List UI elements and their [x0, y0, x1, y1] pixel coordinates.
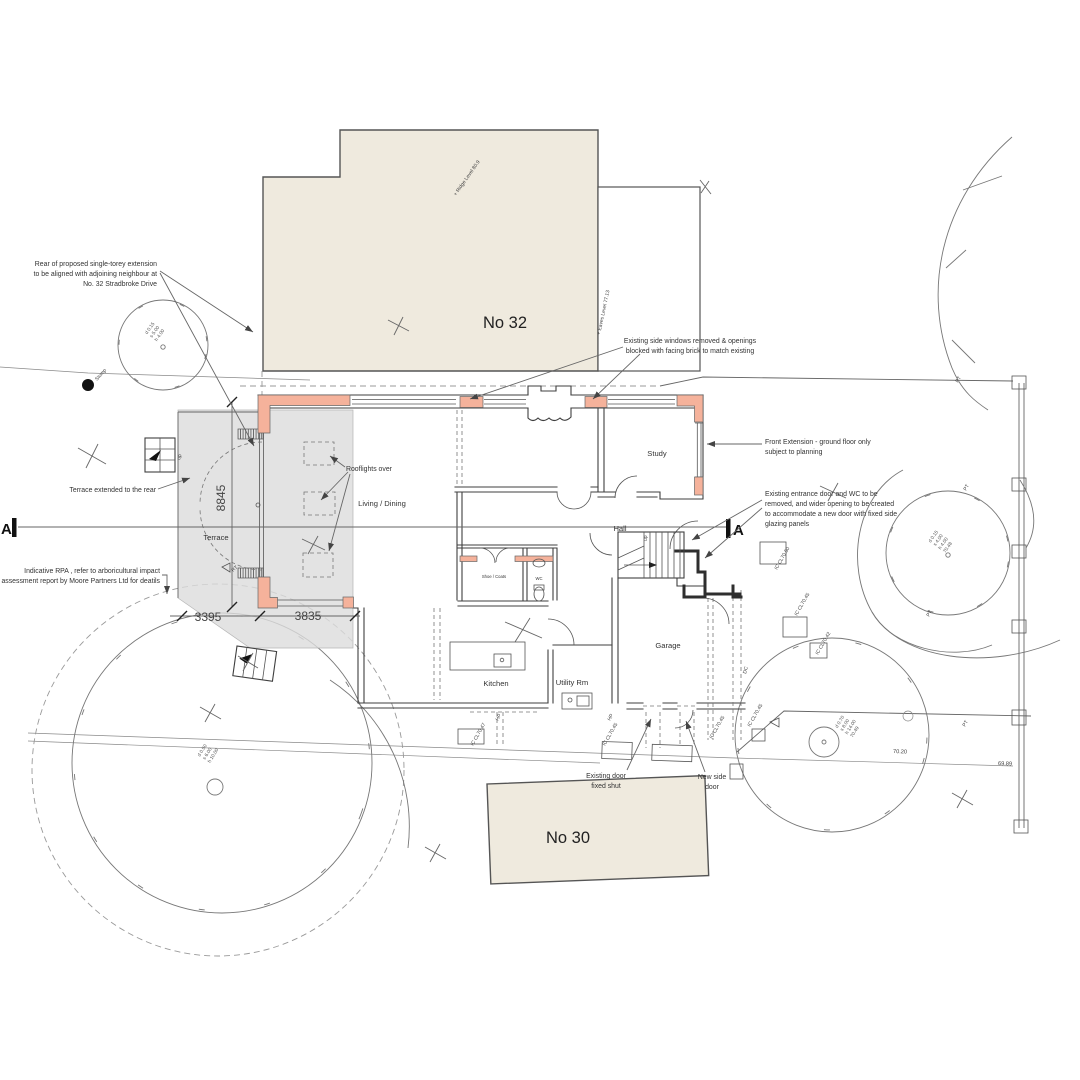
boundary-lines — [0, 367, 1031, 766]
annotation-entrance: Existing entrance door and WC to be remo… — [692, 491, 897, 558]
terrace-label: Terrace — [203, 533, 228, 542]
ic-label-5: IC CL70.47 — [470, 722, 488, 747]
svg-text:assessment report by Moore Par: assessment report by Moore Partners Ltd … — [1, 578, 160, 585]
store-label: Shoe / Coats — [482, 574, 506, 579]
svg-text:Existing entrance door and WC: Existing entrance door and WC to be — [765, 491, 878, 498]
section-line: A A — [1, 518, 744, 539]
building-no30: No 30 — [487, 776, 709, 884]
svg-text:glazing panels: glazing panels — [765, 521, 810, 528]
rooflights-label: Rooflights over — [346, 466, 393, 473]
stump-label: Stump — [94, 367, 108, 382]
stump-marker: Stump — [82, 367, 108, 391]
stairs-up-label: up — [643, 535, 649, 541]
section-marker-right: A — [733, 522, 744, 539]
ic-label-1: IC CL70.50 — [774, 546, 792, 571]
ic-label-2: IC CL70.45 — [794, 592, 812, 617]
study-label: Study — [647, 449, 667, 458]
pt-label-2: PT — [963, 483, 971, 492]
svg-text:Terrace extended to the rear: Terrace extended to the rear — [69, 487, 156, 494]
annotation-rpa: Indicative RPA , refer to arboricultural… — [1, 568, 167, 594]
garage-door-arc — [703, 598, 729, 624]
fence-right — [1012, 376, 1028, 833]
tree-bottom-right: d 0.70 s 8.00 h 14.00 70.49 — [717, 620, 947, 850]
svg-text:Indicative RPA , refer to arbo: Indicative RPA , refer to arboricultural… — [24, 568, 160, 575]
section-marker-left: A — [1, 521, 12, 538]
svg-text:Front Extension - ground floor: Front Extension - ground floor only — [765, 439, 871, 446]
living-dining-label: Living / Dining — [358, 499, 406, 508]
pt-label-3: PT — [926, 609, 934, 618]
tree-right: d 0.15 s 4.00 h 4.00 70.48 — [858, 470, 1060, 658]
svg-text:door: door — [705, 784, 719, 791]
ic-label-7: IC CL70.45 — [709, 715, 727, 740]
svg-text:to accommodate a new door with: to accommodate a new door with fixed sid… — [765, 511, 897, 518]
hall-label: Hall — [613, 524, 626, 533]
svg-text:blocked with facing brick to m: blocked with facing brick to match exist… — [626, 348, 754, 355]
garage-label: Garage — [655, 641, 680, 650]
annotation-front-extension: Front Extension - ground floor only subj… — [707, 439, 871, 456]
svg-text:New side: New side — [698, 774, 727, 781]
ic-label-4: IC CL70.45 — [747, 703, 765, 728]
utility-door-arc — [548, 619, 574, 645]
hall-double-doors — [557, 492, 591, 509]
svg-text:to be aligned with adjoining n: to be aligned with adjoining neighbour a… — [34, 271, 157, 278]
svg-text:Rear of proposed single-torey: Rear of proposed single-torey extension — [35, 261, 157, 268]
dim-3395: 3395 — [195, 610, 222, 624]
study-door-arc — [615, 476, 637, 498]
kitchen-label: Kitchen — [483, 679, 508, 688]
bifold-door-stack-bottom — [238, 568, 263, 578]
kitchen-island — [450, 642, 525, 670]
new-side-door-arc — [675, 710, 693, 728]
hp-label-2: HP — [607, 712, 616, 722]
svg-text:No. 32 Stradbroke Drive: No. 32 Stradbroke Drive — [83, 281, 157, 288]
tree-rpa-bottom-left: d 0.50 s 6.00 h 10.00 — [32, 573, 412, 956]
level-69-89: 69.89 — [998, 761, 1012, 767]
ic-label-6: IC CL70.45 — [602, 722, 620, 747]
tree-canopy-top-right — [938, 137, 1012, 410]
plan-canvas: No 32 + Ridge Level 80.9 + Eaves Level 7… — [0, 0, 1080, 1080]
pt-label-4: PT — [962, 719, 970, 728]
utility-label: Utility Rm — [556, 678, 588, 687]
svg-text:fixed shut: fixed shut — [591, 783, 621, 790]
dc-label: DC — [742, 666, 750, 675]
annotation-terrace-extended: Terrace extended to the rear — [69, 478, 190, 494]
svg-text:Existing door: Existing door — [586, 773, 627, 780]
site-plan-drawing: No 32 + Ridge Level 80.9 + Eaves Level 7… — [0, 0, 1080, 1080]
no32-label: No 32 — [483, 314, 527, 332]
chimney-breast — [528, 386, 571, 395]
dim-8845: 8845 — [214, 484, 228, 511]
building-no32: No 32 + Ridge Level 80.9 + Eaves Level 7… — [263, 130, 700, 371]
svg-text:subject to planning: subject to planning — [765, 449, 823, 456]
hp-label-1: HP — [495, 712, 504, 722]
staircase: up — [590, 532, 684, 578]
level-70-20: 70.20 — [893, 749, 907, 755]
svg-text:removed, and wider opening to: removed, and wider opening to be created — [765, 501, 894, 508]
ic-label-3: IC CL70.42 — [815, 631, 833, 656]
garden-steps-south — [233, 646, 277, 681]
dim-3835: 3835 — [295, 609, 322, 623]
no30-label: No 30 — [546, 829, 590, 847]
wc-toilet — [534, 587, 544, 601]
wc-label: WC — [536, 576, 543, 581]
svg-text:Existing side windows removed: Existing side windows removed & openings — [624, 338, 757, 345]
